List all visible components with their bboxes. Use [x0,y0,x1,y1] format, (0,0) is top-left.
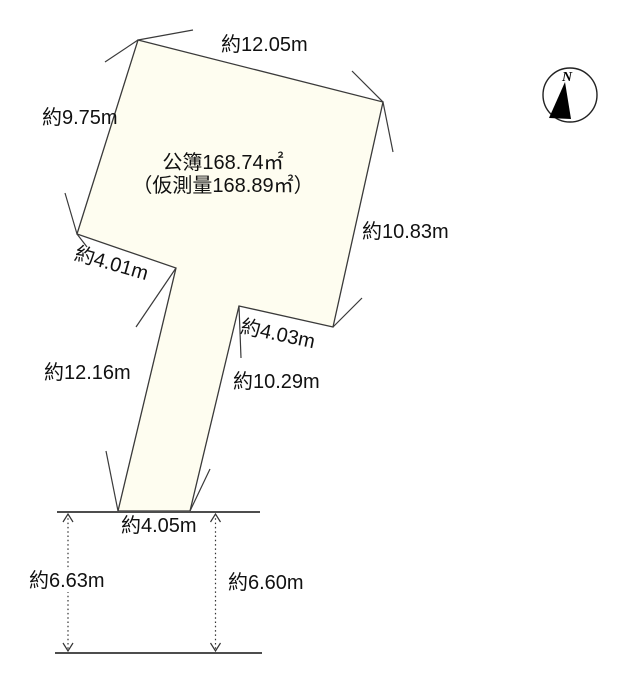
area-label-registered: 公簿168.74㎡ [112,152,334,175]
dimension-frontage: 約4.05m [119,515,199,537]
dimension-upper-left-edge: 約9.75m [42,107,118,129]
compass-needle-icon [549,82,571,119]
dimension-flagpole-right: 約10.29m [233,371,320,393]
boundary-tick [138,30,193,40]
boundary-tick [383,102,393,152]
dimension-right-edge: 約10.83m [362,221,449,243]
dimension-road-span-right: 約6.60m [225,572,307,594]
compass-north-label: N [561,70,573,85]
diagram-canvas: N 公簿168.74㎡ （仮測量168.89㎡） 約12.05m 約9.75m … [0,0,620,687]
boundary-tick [106,451,118,511]
dimension-road-span-left: 約6.63m [26,570,108,592]
dimension-top-edge: 約12.05m [221,34,308,56]
dimension-flagpole-left: 約12.16m [44,362,131,384]
area-label: 公簿168.74㎡ （仮測量168.89㎡） [112,152,334,198]
boundary-tick [65,193,77,234]
dotted-arrow-right [211,514,221,651]
area-label-provisional: （仮測量168.89㎡） [112,175,334,198]
compass: N [543,68,597,122]
